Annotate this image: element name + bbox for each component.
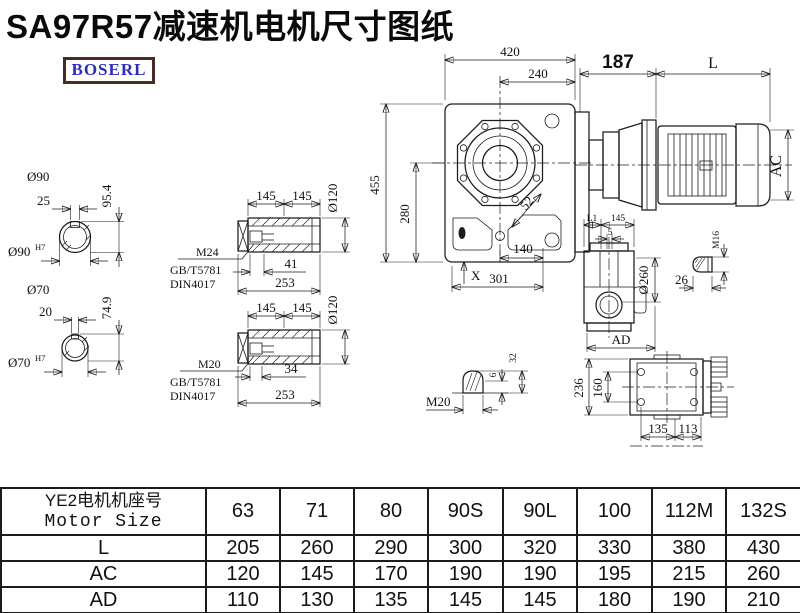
side-AD-label: AD — [612, 332, 631, 347]
side-5-label: 5 — [608, 228, 613, 238]
dim-240-label: 240 — [528, 66, 548, 81]
shaft90-keydepth-label: 95.4 — [99, 184, 114, 207]
table-cell: 145 — [280, 561, 354, 587]
table-cell: 130 — [280, 587, 354, 613]
bottom-135-label: 135 — [648, 421, 668, 436]
sleeve-bot-od: Ø120 — [325, 296, 340, 325]
m20-plug-detail: M20 6 32 — [426, 353, 528, 414]
motor-size-table: YE2电机机座号 Motor Size 63 71 80 90S 90L 100… — [0, 487, 800, 613]
table-cell: 135 — [354, 587, 428, 613]
row-label-AC: AC — [1, 561, 206, 587]
sleeve-top-145a: 145 — [256, 188, 276, 203]
gearbox-side-view: L1 145 5 Ø260 AD M16 — [584, 214, 729, 352]
sleeve-m20-detail: 145 145 Ø120 M20 GB/T5781 DIN4017 34 253 — [170, 296, 350, 407]
col-header-132S: 132S — [726, 488, 800, 535]
dim-L-label: L — [708, 55, 718, 72]
table-cell: 260 — [726, 561, 800, 587]
side-M16-label: M16 — [712, 231, 722, 249]
table-row-L: L 205 260 290 300 320 330 380 430 — [1, 535, 800, 561]
table-cell: 170 — [354, 561, 428, 587]
hollow-shaft-70-detail: Ø70 20 74.9 Ø70 H7 — [8, 282, 124, 377]
shaft90-keywidth-label: 25 — [37, 193, 50, 208]
dim-AC-label: AC — [768, 155, 785, 177]
table-cell: 205 — [206, 535, 280, 561]
dim-280-label: 280 — [397, 204, 412, 224]
row-label-L: L — [1, 535, 206, 561]
dim-140-label: 140 — [513, 241, 533, 256]
page: SA97R57减速机电机尺寸图纸 BOSERL — [0, 0, 800, 613]
shaft70-label: Ø70 — [27, 282, 49, 297]
table-cell: 430 — [726, 535, 800, 561]
sleeve-bot-thread: M20 — [198, 357, 221, 371]
table-cell: 195 — [577, 561, 652, 587]
table-row-AC: AC 120 145 170 190 190 195 215 260 — [1, 561, 800, 587]
sleeve-bot-totallen: 253 — [275, 387, 295, 402]
sleeve-top-od: Ø120 — [325, 184, 340, 213]
sleeve-top-std2: DIN4017 — [170, 277, 215, 291]
col-header-80: 80 — [354, 488, 428, 535]
shaft70-bore-tol: H7 — [35, 353, 45, 363]
plug-6-label: 6 — [489, 372, 499, 377]
sleeve-bot-std2: DIN4017 — [170, 389, 215, 403]
col-header-90L: 90L — [503, 488, 577, 535]
dim-420-label: 420 — [500, 44, 520, 59]
dim-52-label: 52 — [517, 193, 537, 213]
shaft70-keywidth-label: 20 — [39, 304, 52, 319]
col-header-112M: 112M — [652, 488, 726, 535]
hollow-shaft-90-detail: Ø90 25 95.4 Ø90 H7 — [8, 169, 124, 267]
plug-32-label: 32 — [509, 353, 519, 363]
bottom-236-label: 236 — [571, 378, 586, 398]
plug-M20-label: M20 — [426, 394, 451, 409]
table-cell: 380 — [652, 535, 726, 561]
table-cell: 320 — [503, 535, 577, 561]
table-cell: 190 — [428, 561, 503, 587]
shaft90-label: Ø90 — [27, 169, 49, 184]
table-cell: 190 — [652, 587, 726, 613]
table-cell: 260 — [280, 535, 354, 561]
dim-X-label: X — [471, 268, 481, 283]
table-header-cn: YE2电机机座号 — [2, 490, 205, 512]
table-cell: 300 — [428, 535, 503, 561]
shaft90-bore-tol: H7 — [35, 242, 45, 252]
sleeve-top-threadlen: 41 — [285, 256, 298, 271]
sleeve-top-145b: 145 — [292, 188, 312, 203]
side-L1-label: L1 — [587, 214, 598, 224]
technical-drawing: 420 240 187 L 455 280 AC 52 X — [0, 0, 800, 487]
gearbox-bottom-view: 236 160 135 113 — [571, 351, 734, 446]
table-cell: 330 — [577, 535, 652, 561]
row-label-AD: AD — [1, 587, 206, 613]
table-cell: 215 — [652, 561, 726, 587]
side-260-label: Ø260 — [636, 266, 651, 295]
table-cell: 110 — [206, 587, 280, 613]
sleeve-bot-145a: 145 — [256, 300, 276, 315]
table-header-motor-size: YE2电机机座号 Motor Size — [1, 488, 206, 535]
bottom-160-label: 160 — [590, 378, 605, 398]
table-cell: 145 — [428, 587, 503, 613]
dim-187-label: 187 — [602, 52, 634, 73]
sleeve-bot-std1: GB/T5781 — [170, 375, 221, 389]
dim-301-label: 301 — [489, 271, 509, 286]
table-row-AD: AD 110 130 135 145 145 180 190 210 — [1, 587, 800, 613]
table-cell: 210 — [726, 587, 800, 613]
table-cell: 190 — [503, 561, 577, 587]
sleeve-m24-detail: 145 145 Ø120 M24 GB/T5781 DIN4017 41 253 — [170, 184, 350, 295]
table-cell: 290 — [354, 535, 428, 561]
shaft90-bore-label: Ø90 — [8, 244, 30, 259]
col-header-71: 71 — [280, 488, 354, 535]
sleeve-bot-threadlen: 34 — [285, 361, 299, 376]
dim-455-label: 455 — [367, 175, 382, 195]
sleeve-top-std1: GB/T5781 — [170, 263, 221, 277]
col-header-100: 100 — [577, 488, 652, 535]
col-header-63: 63 — [206, 488, 280, 535]
sleeve-top-totallen: 253 — [275, 275, 295, 290]
table-header-en: Motor Size — [2, 512, 205, 533]
shaft70-keydepth-label: 74.9 — [99, 297, 114, 320]
table-cell: 145 — [503, 587, 577, 613]
sleeve-top-thread: M24 — [196, 245, 219, 259]
col-header-90S: 90S — [428, 488, 503, 535]
side-26-label: 26 — [675, 272, 689, 287]
bottom-113-label: 113 — [678, 421, 697, 436]
main-front-view: 420 240 187 L 455 280 AC 52 X — [367, 44, 794, 292]
sleeve-bot-145b: 145 — [292, 300, 312, 315]
shaft70-bore-label: Ø70 — [8, 355, 30, 370]
table-cell: 120 — [206, 561, 280, 587]
table-cell: 180 — [577, 587, 652, 613]
side-145-label: 145 — [611, 214, 626, 224]
table-header-row: YE2电机机座号 Motor Size 63 71 80 90S 90L 100… — [1, 488, 800, 535]
